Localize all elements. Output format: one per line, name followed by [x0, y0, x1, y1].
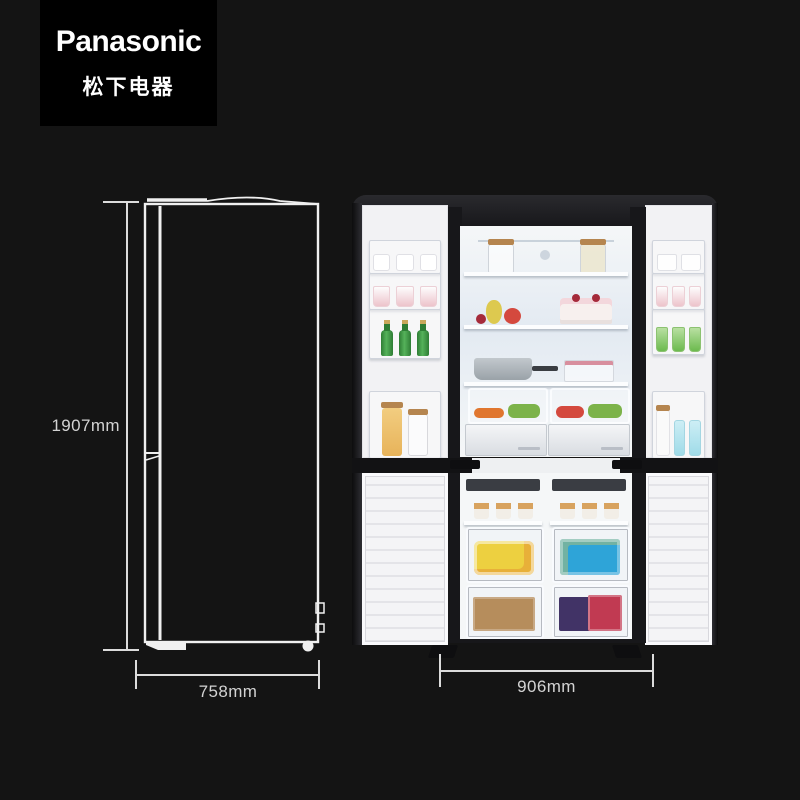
crisper-drawer-left — [468, 388, 548, 424]
cake-berry — [572, 294, 580, 302]
freezer-drawer-right-mid — [552, 527, 630, 583]
mid-hinge-right — [612, 460, 642, 469]
front-view-refrigerator — [352, 195, 718, 660]
right-door-bin-bottles — [652, 391, 705, 459]
right-door-bin-mugs — [652, 240, 705, 274]
side-rear-caster — [303, 641, 314, 652]
blue-bottle-item — [689, 420, 701, 456]
freezer-vent-right — [552, 479, 626, 491]
green-cup-item — [656, 327, 668, 352]
blue-frozen-box — [560, 539, 620, 575]
storage-jar-right — [580, 244, 606, 274]
carton-item — [420, 254, 437, 271]
right-fridge-door-edge — [712, 203, 718, 460]
cabinet-frame-right — [630, 207, 646, 459]
apple-item — [504, 308, 521, 324]
ice-cream-cup — [582, 503, 597, 519]
saucepan-handle — [532, 366, 558, 371]
carton-item — [396, 254, 413, 271]
width-dimension-label: 906mm — [440, 677, 653, 697]
side-view-outline — [100, 192, 330, 662]
green-cup-item — [672, 327, 684, 352]
height-dimension-tick-bottom — [103, 649, 139, 651]
bottom-hinge-right — [612, 645, 642, 658]
drawer-logo-mark — [601, 447, 623, 450]
freezer-drawer-left-mid — [466, 527, 544, 583]
berry-cake-item — [560, 298, 612, 324]
fresh-drawer-left — [465, 424, 547, 456]
clear-jar-item — [408, 414, 428, 456]
ice-cream-shelf-right — [552, 497, 626, 519]
depth-dimension-tick-right — [318, 660, 320, 689]
saucepan-item — [474, 358, 532, 380]
width-dimension-line — [440, 670, 653, 672]
right-fridge-door — [645, 205, 712, 458]
height-dimension-line — [126, 202, 128, 650]
cherries-item — [476, 314, 486, 324]
right-door-bin-green-cups — [652, 309, 705, 355]
brand-logo-chinese-text: 松下电器 — [83, 71, 175, 101]
mid-band-center — [472, 458, 620, 473]
berry-box-item — [564, 360, 614, 382]
freezer-interior — [460, 473, 632, 639]
fresh-compartment-interior — [460, 226, 632, 457]
ice-cream-cup — [496, 503, 511, 519]
brand-logo-block: Panasonic 松下电器 — [40, 0, 217, 126]
ice-cream-shelf-left — [466, 497, 540, 519]
greens-item — [588, 404, 622, 418]
pink-can-item — [672, 286, 684, 307]
height-dimension-label: 1907mm — [24, 416, 120, 436]
red-veg-item — [556, 406, 584, 418]
depth-dimension-line — [136, 674, 320, 676]
right-freezer-door-edge — [712, 473, 718, 645]
freezer-column-left — [464, 477, 542, 635]
freezer-drawer-right-bottom — [552, 585, 630, 639]
yellow-frozen-bag — [474, 541, 534, 575]
green-bottle-item — [381, 330, 393, 356]
ice-cream-cup — [604, 503, 619, 519]
green-bottle-item — [417, 330, 429, 356]
shelf-1 — [464, 272, 628, 276]
pink-can-item — [656, 286, 668, 307]
blue-bottle-item — [674, 420, 686, 456]
left-door-bin-cartons — [369, 240, 441, 274]
drawer-logo-mark — [518, 447, 540, 450]
pear-item — [486, 300, 502, 324]
mid-hinge-left — [450, 460, 480, 469]
yogurt-cup-item — [396, 286, 413, 307]
fresh-drawer-right — [548, 424, 630, 456]
freezer-shelf-right — [550, 521, 628, 525]
side-cabinet-outline — [145, 204, 318, 642]
left-freezer-door-edge — [352, 473, 362, 645]
product-dimension-diagram: Panasonic 松下电器 1907mm 758mm — [0, 0, 800, 800]
crisper-drawer-right — [550, 388, 630, 424]
right-freezer-door — [645, 473, 712, 645]
depth-dimension-tick-left — [135, 660, 137, 689]
greens-item — [508, 404, 540, 418]
pink-can-item — [689, 286, 701, 307]
green-cup-item — [689, 327, 701, 352]
ice-cream-cup — [474, 503, 489, 519]
cake-berry — [592, 294, 600, 302]
red-package — [588, 595, 622, 631]
height-dimension-tick-top — [103, 201, 139, 203]
freezer-drawer-left-bottom — [466, 585, 544, 639]
freezer-shelf-left — [464, 521, 542, 525]
green-bottle-item — [399, 330, 411, 356]
interior-led-light — [540, 250, 550, 260]
glass-mug-item — [657, 254, 677, 271]
brand-logo-text: Panasonic — [56, 25, 202, 59]
carton-item — [373, 254, 390, 271]
yogurt-cup-item — [420, 286, 437, 307]
ice-cream-cup — [518, 503, 533, 519]
pasta-jar-item — [382, 408, 402, 456]
side-front-foot — [146, 642, 186, 650]
carrots-item — [474, 408, 504, 418]
shelf-3 — [464, 382, 628, 386]
depth-dimension-label: 758mm — [153, 682, 303, 702]
left-door-bin-jars — [369, 391, 441, 459]
storage-jar-left — [488, 244, 514, 274]
milk-bottle-item — [656, 410, 670, 456]
kraft-packages — [473, 597, 535, 631]
right-door-bin-pink-cans — [652, 273, 705, 310]
left-fridge-door — [362, 205, 448, 458]
shelf-2 — [464, 325, 628, 329]
left-fridge-door-edge — [352, 203, 362, 460]
freezer-column-right — [550, 477, 628, 635]
left-freezer-door — [362, 473, 448, 645]
left-door-bin-green-bottles — [369, 309, 441, 359]
left-door-bin-yogurt-cups — [369, 273, 441, 310]
glass-mug-item — [681, 254, 701, 271]
bottom-hinge-left — [428, 645, 458, 658]
freezer-vent-left — [466, 479, 540, 491]
ice-cream-cup — [560, 503, 575, 519]
yogurt-cup-item — [373, 286, 390, 307]
side-door-split-lower — [146, 456, 159, 460]
